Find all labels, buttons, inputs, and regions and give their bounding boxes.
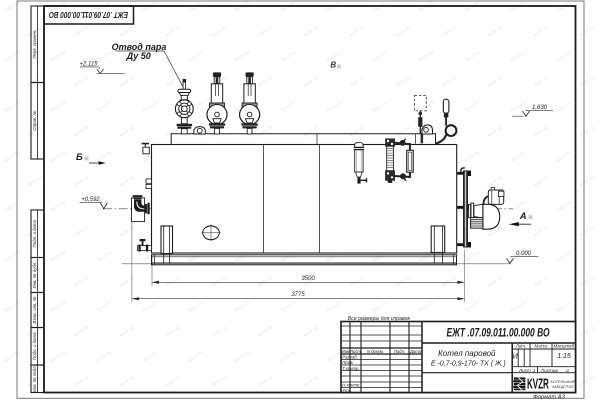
svg-text:kvzr.ru: kvzr.ru <box>510 300 527 314</box>
svg-text:kvzr.ru: kvzr.ru <box>395 25 412 39</box>
svg-text:kvzr.ru: kvzr.ru <box>211 275 228 289</box>
svg-text:Масштаб: Масштаб <box>554 344 575 349</box>
svg-text:kvzr.ru: kvzr.ru <box>142 350 159 364</box>
svg-text:kvzr.ru: kvzr.ru <box>142 100 159 114</box>
svg-text:Разраб.: Разраб. <box>342 355 358 360</box>
svg-text:kvzr.ru: kvzr.ru <box>372 100 389 114</box>
svg-text:kvzr.ru: kvzr.ru <box>395 125 412 139</box>
svg-text:kvzr.ru: kvzr.ru <box>556 300 573 314</box>
svg-text:kvzr.ru: kvzr.ru <box>280 50 297 64</box>
svg-text:kvzr.ru: kvzr.ru <box>395 75 412 89</box>
svg-text:kvzr.ru: kvzr.ru <box>119 275 136 289</box>
svg-text:Котел паровой: Котел паровой <box>438 349 496 358</box>
svg-text:kvzr.ru: kvzr.ru <box>487 75 504 89</box>
svg-text:kvzr.ru: kvzr.ru <box>4 200 21 214</box>
svg-text:kvzr.ru: kvzr.ru <box>96 350 113 364</box>
svg-text:kvzr.ru: kvzr.ru <box>119 225 136 239</box>
svg-text:kvzr.ru: kvzr.ru <box>119 325 136 339</box>
svg-text:kvzr.ru: kvzr.ru <box>349 275 366 289</box>
svg-text:kvzr.ru: kvzr.ru <box>27 75 44 89</box>
svg-text:kvzr.ru: kvzr.ru <box>119 25 136 39</box>
svg-text:kvzr.ru: kvzr.ru <box>234 50 251 64</box>
svg-text:kvzr.ru: kvzr.ru <box>510 150 527 164</box>
svg-text:Инв. № подл.: Инв. № подл. <box>32 365 37 392</box>
svg-text:Лист: Лист <box>518 368 531 373</box>
svg-text:Лист: Лист <box>349 349 361 354</box>
svg-text:kvzr.ru: kvzr.ru <box>533 225 550 239</box>
svg-text:kvzr.ru: kvzr.ru <box>579 125 596 139</box>
svg-text:kvzr.ru: kvzr.ru <box>234 300 251 314</box>
svg-text:kvzr.ru: kvzr.ru <box>165 25 182 39</box>
svg-text:Е -0,7-0,9-170- ТХ ( Ж ): Е -0,7-0,9-170- ТХ ( Ж ) <box>431 361 506 368</box>
svg-text:kvzr.ru: kvzr.ru <box>4 300 21 314</box>
svg-text:kvzr.ru: kvzr.ru <box>510 50 527 64</box>
svg-text:kvzr.ru: kvzr.ru <box>533 175 550 189</box>
svg-text:kvzr.ru: kvzr.ru <box>188 50 205 64</box>
svg-text:kvzr.ru: kvzr.ru <box>556 200 573 214</box>
svg-text:Инв. № дубл.: Инв. № дубл. <box>32 261 37 288</box>
svg-text:kvzr.ru: kvzr.ru <box>556 50 573 64</box>
svg-text:kvzr.ru: kvzr.ru <box>464 50 481 64</box>
svg-text:kvzr.ru: kvzr.ru <box>441 25 458 39</box>
svg-text:kvzr.ru: kvzr.ru <box>579 225 596 239</box>
svg-text:Перв. примен.: Перв. примен. <box>32 30 37 59</box>
svg-text:kvzr.ru: kvzr.ru <box>257 125 274 139</box>
svg-text:kvzr.ru: kvzr.ru <box>464 100 481 114</box>
svg-text:kvzr.ru: kvzr.ru <box>96 250 113 264</box>
svg-text:1: 1 <box>533 368 536 373</box>
svg-text:kvzr.ru: kvzr.ru <box>73 25 90 39</box>
svg-text:КОТЕЛЬНЫЙ: КОТЕЛЬНЫЙ <box>551 380 575 384</box>
svg-text:ЕЖТ .07.09.011.00.000 ВО: ЕЖТ .07.09.011.00.000 ВО <box>49 10 128 19</box>
svg-text:kvzr.ru: kvzr.ru <box>50 350 67 364</box>
svg-text:kvzr.ru: kvzr.ru <box>303 75 320 89</box>
svg-text:+0,592: +0,592 <box>81 197 100 203</box>
svg-text:kvzr.ru: kvzr.ru <box>188 350 205 364</box>
svg-text:kvzr.ru: kvzr.ru <box>50 150 67 164</box>
svg-text:kvzr.ru: kvzr.ru <box>579 375 596 389</box>
svg-text:Дата: Дата <box>409 349 422 354</box>
svg-text:3500: 3500 <box>301 276 315 282</box>
svg-text:kvzr.ru: kvzr.ru <box>50 250 67 264</box>
svg-text:Пров.: Пров. <box>342 360 353 365</box>
svg-text:kvzr.ru: kvzr.ru <box>50 50 67 64</box>
svg-text:kvzr.ru: kvzr.ru <box>579 175 596 189</box>
svg-text:Все размеры для справок: Все размеры для справок <box>348 316 411 322</box>
svg-text:kvzr.ru: kvzr.ru <box>50 100 67 114</box>
svg-text:Подп. и дата: Подп. и дата <box>32 219 37 247</box>
svg-text:kvzr.ru: kvzr.ru <box>165 325 182 339</box>
svg-text:kvzr.ru: kvzr.ru <box>96 300 113 314</box>
svg-text:kvzr.ru: kvzr.ru <box>96 100 113 114</box>
svg-text:kvzr.ru: kvzr.ru <box>211 375 228 389</box>
svg-text:1,630: 1,630 <box>532 105 548 111</box>
svg-text:kvzr.ru: kvzr.ru <box>395 275 412 289</box>
svg-text:kvzr.ru: kvzr.ru <box>464 300 481 314</box>
svg-text:Т.контр.: Т.контр. <box>342 366 359 371</box>
svg-text:kvzr.ru: kvzr.ru <box>50 200 67 214</box>
svg-text:kvzr.ru: kvzr.ru <box>4 100 21 114</box>
svg-text:kvzr.ru: kvzr.ru <box>533 275 550 289</box>
svg-text:kvzr.ru: kvzr.ru <box>165 375 182 389</box>
svg-text:Утв.: Утв. <box>342 388 352 393</box>
svg-text:kvzr.ru: kvzr.ru <box>441 75 458 89</box>
svg-text:kvzr.ru: kvzr.ru <box>234 350 251 364</box>
svg-text:kvzr.ru: kvzr.ru <box>96 50 113 64</box>
svg-text:ЗАВОД РЭП: ЗАВОД РЭП <box>552 385 574 389</box>
svg-text:kvzr.ru: kvzr.ru <box>464 250 481 264</box>
svg-text:kvzr.ru: kvzr.ru <box>119 175 136 189</box>
svg-text:Формат А3: Формат А3 <box>533 394 565 400</box>
svg-text:kvzr.ru: kvzr.ru <box>303 25 320 39</box>
svg-text:kvzr.ru: kvzr.ru <box>487 275 504 289</box>
svg-text:Подп. и дата: Подп. и дата <box>32 332 37 360</box>
svg-text:kvzr.ru: kvzr.ru <box>119 125 136 139</box>
svg-text:kvzr.ru: kvzr.ru <box>372 300 389 314</box>
svg-text:kvzr.ru: kvzr.ru <box>418 300 435 314</box>
svg-text:Листов: Листов <box>540 368 558 373</box>
svg-text:kvzr.ru: kvzr.ru <box>303 325 320 339</box>
svg-text:kvzr.ru: kvzr.ru <box>73 375 90 389</box>
svg-text:kvzr.ru: kvzr.ru <box>211 25 228 39</box>
svg-text:kvzr.ru: kvzr.ru <box>441 275 458 289</box>
svg-text:kvzr.ru: kvzr.ru <box>464 150 481 164</box>
svg-text:kvzr.ru: kvzr.ru <box>349 25 366 39</box>
svg-text:kvzr.ru: kvzr.ru <box>188 300 205 314</box>
svg-text:N докум.: N докум. <box>367 349 384 354</box>
svg-text:kvzr.ru: kvzr.ru <box>165 275 182 289</box>
svg-text:kvzr.ru: kvzr.ru <box>257 275 274 289</box>
svg-text:kvzr.ru: kvzr.ru <box>533 25 550 39</box>
svg-text:kvzr.ru: kvzr.ru <box>257 325 274 339</box>
svg-text:kvzr.ru: kvzr.ru <box>556 150 573 164</box>
svg-text:kvzr.ru: kvzr.ru <box>487 25 504 39</box>
svg-text:kvzr.ru: kvzr.ru <box>280 100 297 114</box>
svg-text:kvzr.ru: kvzr.ru <box>119 75 136 89</box>
svg-text:kvzr.ru: kvzr.ru <box>579 325 596 339</box>
svg-text:kvzr.ru: kvzr.ru <box>280 300 297 314</box>
svg-text:kvzr.ru: kvzr.ru <box>73 275 90 289</box>
svg-text:kvzr.ru: kvzr.ru <box>165 75 182 89</box>
svg-text:kvzr.ru: kvzr.ru <box>579 25 596 39</box>
svg-text:kvzr.ru: kvzr.ru <box>211 325 228 339</box>
svg-text:Ду 50: Ду 50 <box>126 51 151 61</box>
svg-text:kvzr.ru: kvzr.ru <box>4 0 21 14</box>
svg-text:kvzr.ru: kvzr.ru <box>418 50 435 64</box>
svg-text:1:15: 1:15 <box>557 353 571 360</box>
svg-text:Изм: Изм <box>342 349 350 354</box>
svg-text:Справ. №: Справ. № <box>32 110 37 130</box>
svg-text:kvzr.ru: kvzr.ru <box>257 75 274 89</box>
svg-text:ЕЖТ .07.09.011.00.000 ВО: ЕЖТ .07.09.011.00.000 ВО <box>447 326 550 340</box>
svg-text:kvzr.ru: kvzr.ru <box>142 300 159 314</box>
svg-text:kvzr.ru: kvzr.ru <box>73 325 90 339</box>
svg-text:kvzr.ru: kvzr.ru <box>487 175 504 189</box>
svg-text:kvzr.ru: kvzr.ru <box>487 125 504 139</box>
svg-text:kvzr.ru: kvzr.ru <box>4 350 21 364</box>
svg-text:В: В <box>330 60 336 69</box>
svg-text:3775: 3775 <box>291 292 305 298</box>
svg-text:Взам. инв. №: Взам. инв. № <box>32 296 37 323</box>
svg-text:KVZR: KVZR <box>527 377 549 393</box>
svg-text:kvzr.ru: kvzr.ru <box>349 125 366 139</box>
svg-text:kvzr.ru: kvzr.ru <box>4 50 21 64</box>
svg-text:kvzr.ru: kvzr.ru <box>533 125 550 139</box>
svg-text:0,000: 0,000 <box>516 251 532 257</box>
svg-text:kvzr.ru: kvzr.ru <box>73 225 90 239</box>
svg-text:kvzr.ru: kvzr.ru <box>119 375 136 389</box>
svg-text:kvzr.ru: kvzr.ru <box>510 100 527 114</box>
svg-text:kvzr.ru: kvzr.ru <box>50 300 67 314</box>
svg-text:kvzr.ru: kvzr.ru <box>303 375 320 389</box>
svg-text:А: А <box>519 211 527 222</box>
svg-text:Подп.: Подп. <box>394 349 405 354</box>
svg-text:kvzr.ru: kvzr.ru <box>4 150 21 164</box>
svg-text:kvzr.ru: kvzr.ru <box>280 350 297 364</box>
svg-text:kvzr.ru: kvzr.ru <box>257 25 274 39</box>
svg-text:Масса: Масса <box>535 344 549 349</box>
svg-text:Лит.: Лит. <box>515 344 526 349</box>
svg-text:kvzr.ru: kvzr.ru <box>556 100 573 114</box>
svg-text:2: 2 <box>566 368 570 373</box>
svg-text:kvzr.ru: kvzr.ru <box>73 75 90 89</box>
svg-text:kvzr.ru: kvzr.ru <box>257 375 274 389</box>
svg-text:Б: Б <box>76 152 83 163</box>
svg-text:kvzr.ru: kvzr.ru <box>73 175 90 189</box>
svg-text:kvzr.ru: kvzr.ru <box>326 300 343 314</box>
svg-text:kvzr.ru: kvzr.ru <box>4 250 21 264</box>
svg-text:kvzr.ru: kvzr.ru <box>579 75 596 89</box>
svg-text:kvzr.ru: kvzr.ru <box>579 275 596 289</box>
svg-text:kvzr.ru: kvzr.ru <box>73 125 90 139</box>
svg-text:И: И <box>513 351 519 360</box>
svg-text:kvzr.ru: kvzr.ru <box>556 250 573 264</box>
svg-text:kvzr.ru: kvzr.ru <box>96 150 113 164</box>
svg-text:kvzr.ru: kvzr.ru <box>372 50 389 64</box>
svg-text:kvzr.ru: kvzr.ru <box>533 75 550 89</box>
svg-text:kvzr.ru: kvzr.ru <box>349 75 366 89</box>
svg-text:kvzr.ru: kvzr.ru <box>326 100 343 114</box>
svg-text:kvzr.ru: kvzr.ru <box>27 175 44 189</box>
